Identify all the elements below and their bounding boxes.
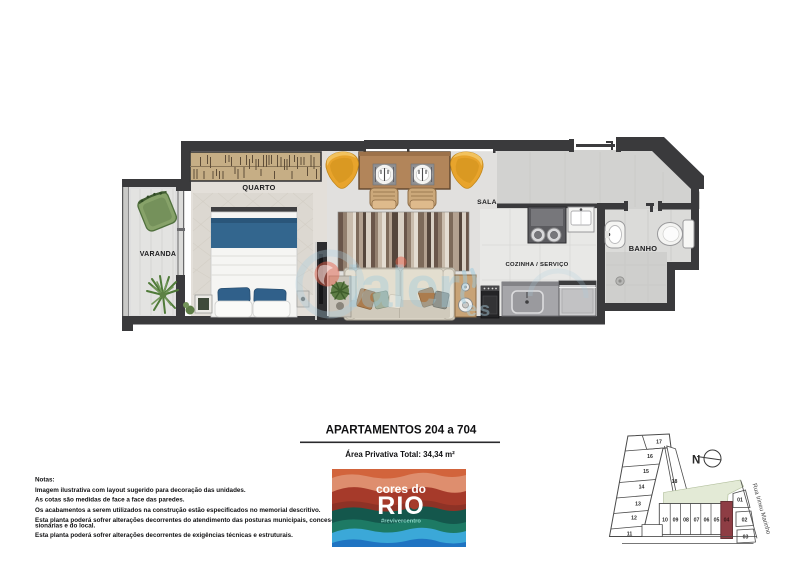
svg-text:15: 15 [643, 469, 649, 475]
svg-text:QUARTO: QUARTO [242, 183, 275, 192]
svg-text:COZINHA / SERVIÇO: COZINHA / SERVIÇO [505, 262, 568, 268]
svg-text:03: 03 [743, 535, 749, 541]
svg-text:12: 12 [631, 516, 637, 522]
svg-text:01: 01 [737, 498, 743, 504]
svg-text:07: 07 [694, 518, 700, 524]
svg-text:02: 02 [742, 518, 748, 524]
svg-text:Imagem ilustrativa com layout: Imagem ilustrativa com layout sugerido p… [35, 487, 246, 494]
svg-text:16: 16 [647, 454, 653, 460]
svg-text:BANHO: BANHO [629, 244, 658, 253]
svg-text:#revivercentro: #revivercentro [381, 519, 421, 525]
svg-text:13: 13 [635, 502, 641, 508]
svg-text:09: 09 [673, 518, 679, 524]
svg-text:sionárias e do local.: sionárias e do local. [35, 523, 95, 530]
svg-text:As cotas são medidas de face a: As cotas são medidas de face a face das … [35, 497, 185, 504]
svg-text:APARTAMENTOS 204 a 704: APARTAMENTOS 204 a 704 [326, 424, 477, 437]
svg-text:10: 10 [662, 518, 668, 524]
svg-text:18: 18 [672, 479, 678, 485]
svg-text:Área Privativa Total: 34,34 m²: Área Privativa Total: 34,34 m² [345, 450, 455, 459]
svg-text:04: 04 [724, 518, 730, 524]
svg-text:05: 05 [714, 518, 720, 524]
svg-text:14: 14 [639, 485, 645, 491]
svg-text:17: 17 [656, 440, 662, 446]
svg-text:ialer: ialer [345, 255, 460, 320]
svg-text:06: 06 [704, 518, 710, 524]
svg-text:SALA: SALA [477, 199, 497, 206]
svg-text:VARANDA: VARANDA [140, 251, 177, 258]
svg-text:Esta planta poderá sofrer alte: Esta planta poderá sofrer alterações dec… [35, 532, 293, 539]
svg-text:08: 08 [683, 518, 689, 524]
svg-text:Notas:: Notas: [35, 477, 55, 484]
svg-text:Os acabamentos a serem utiliza: Os acabamentos a serem utilizados na con… [35, 507, 321, 514]
svg-text:es: es [466, 299, 492, 321]
svg-text:N: N [692, 455, 700, 467]
